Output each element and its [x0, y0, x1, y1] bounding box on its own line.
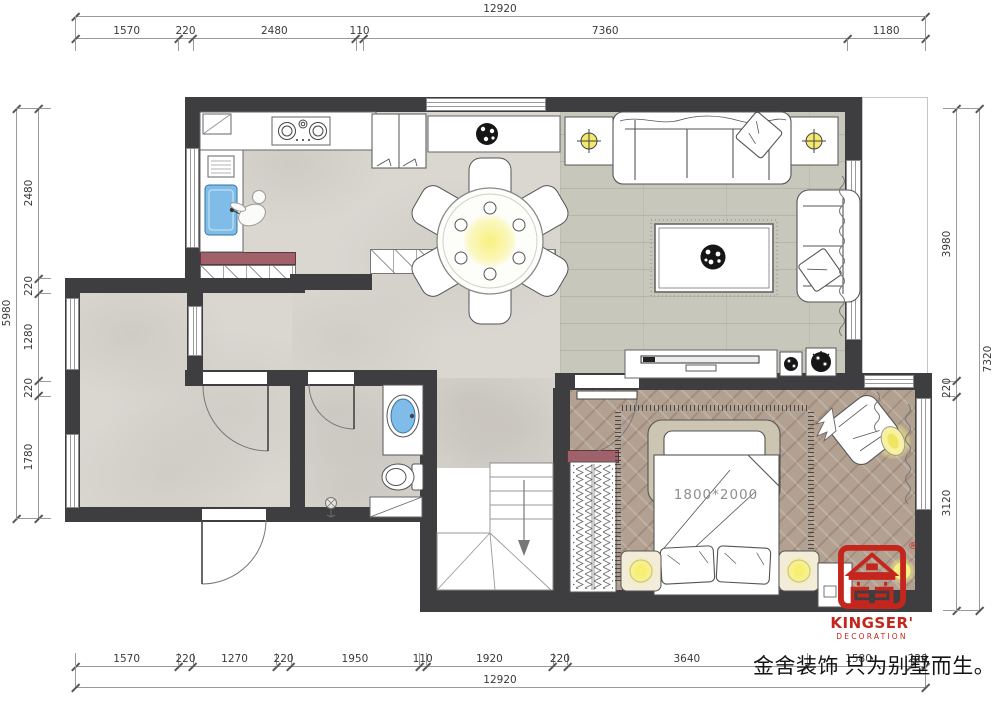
- dimension-mark: [174, 34, 183, 43]
- dimension-mark: [925, 39, 926, 51]
- dimension-label: 220: [550, 653, 570, 665]
- wall-stairs-right: [553, 388, 570, 612]
- dimension-label: 220: [23, 276, 35, 296]
- dimension-mark: [351, 34, 360, 43]
- dimension-label: 2480: [261, 25, 288, 37]
- dimension-mark: [553, 653, 554, 665]
- dimension-mark: [356, 39, 357, 51]
- window-bedroom-right: [916, 398, 931, 510]
- dimension-label: 1280: [23, 324, 35, 351]
- logo-name: KINGSER': [822, 616, 922, 631]
- dimension-label: 220: [941, 378, 953, 398]
- logo-subtitle: DECORATION: [822, 633, 922, 641]
- dimension-mark: [921, 12, 930, 21]
- dimension-label: 1570: [113, 653, 140, 665]
- kingser-logo: ® KINGSER' DECORATION: [822, 544, 922, 641]
- dimension-mark: [921, 34, 930, 43]
- dimension-mark: [419, 653, 420, 665]
- dimension-mark: [188, 662, 197, 671]
- dimension-mark: [975, 606, 984, 615]
- dimension-label: 1780: [23, 444, 35, 471]
- dimension-label: 3120: [941, 490, 953, 517]
- logo-house-icon: [837, 544, 907, 610]
- dimension-label: 220: [23, 378, 35, 398]
- dimension-label: 110: [413, 653, 433, 665]
- dimension-label: 1570: [113, 25, 140, 37]
- dimension-mark: [34, 377, 43, 386]
- dimension-mark: [12, 514, 21, 523]
- door-opening-bedroom: [575, 375, 639, 388]
- door-opening-left-room: [203, 372, 267, 384]
- dimension-mark: [39, 108, 51, 109]
- dimension-mark: [16, 108, 38, 109]
- registered-icon: ®: [908, 542, 918, 552]
- dimension-mark: [34, 289, 43, 298]
- dimension-mark: [39, 381, 51, 382]
- floor-bathroom: [303, 384, 423, 509]
- dimension-mark: [39, 278, 51, 279]
- dimension-mark: [925, 16, 926, 38]
- dimension-label: 7360: [592, 25, 619, 37]
- dimension-mark: [921, 683, 930, 692]
- dimension-mark: [952, 377, 961, 386]
- dimension-label: 1270: [221, 653, 248, 665]
- dimension-label: 220: [274, 653, 294, 665]
- wall-leftblock-bottom: [65, 507, 305, 522]
- dimension-mark: [71, 34, 80, 43]
- dimension-mark: [174, 662, 183, 671]
- dimension-mark: [75, 687, 925, 688]
- dimension-mark: [415, 662, 424, 671]
- dimension-mark: [75, 653, 76, 665]
- dimension-mark: [422, 662, 431, 671]
- side-terrace: [862, 97, 928, 380]
- dimension-mark: [943, 396, 955, 397]
- dimension-mark: [276, 653, 277, 665]
- dimension-label: 2480: [23, 180, 35, 207]
- dimension-mark: [956, 610, 979, 611]
- dimension-mark: [952, 606, 961, 615]
- dimension-mark: [75, 38, 925, 39]
- dimension-mark: [12, 104, 21, 113]
- floorplan-canvas: 1800*2000 157022024801107360118012920157…: [0, 0, 1000, 707]
- dimension-label: 3980: [941, 231, 953, 258]
- dimension-label: 3640: [673, 653, 700, 665]
- dimension-mark: [34, 104, 43, 113]
- dimension-mark: [567, 653, 568, 665]
- window-top: [426, 98, 546, 111]
- dimension-mark: [975, 104, 984, 113]
- dimension-mark: [426, 653, 427, 665]
- dimension-mark: [943, 108, 955, 109]
- dimension-mark: [563, 662, 572, 671]
- dimension-mark: [16, 518, 38, 519]
- floor-left-rooms: [78, 291, 292, 509]
- dimension-mark: [943, 381, 955, 382]
- dimension-mark: [979, 108, 980, 610]
- hall-cabinet-row: [370, 249, 556, 274]
- wall-bath-bottom: [290, 507, 437, 522]
- dimension-mark: [548, 662, 557, 671]
- dimension-mark: [38, 108, 39, 518]
- dimension-mark: [359, 34, 368, 43]
- door-opening-exterior: [202, 509, 266, 520]
- dimension-mark: [75, 666, 76, 687]
- wall-stairs-bottom: [420, 590, 570, 612]
- window-interior: [188, 306, 202, 356]
- dimension-mark: [952, 104, 961, 113]
- dimension-label: 220: [175, 653, 195, 665]
- wall-bath-right: [420, 370, 437, 612]
- dimension-mark: [952, 392, 961, 401]
- dimension-mark: [39, 518, 51, 519]
- dimension-mark: [178, 39, 179, 51]
- dimension-label: 1920: [476, 653, 503, 665]
- dimension-mark: [291, 653, 292, 665]
- dimension-mark: [193, 39, 194, 51]
- dimension-mark: [286, 662, 295, 671]
- window-left-room-2: [66, 434, 79, 508]
- dimension-mark: [843, 34, 852, 43]
- dimension-mark: [193, 653, 194, 665]
- door-opening-bathroom: [308, 372, 354, 384]
- dimension-mark: [34, 392, 43, 401]
- dimension-mark: [178, 653, 179, 665]
- dimension-label: 12920: [483, 674, 516, 686]
- dimension-label: 110: [350, 25, 370, 37]
- window-kitchen-left: [186, 148, 199, 248]
- dimension-mark: [75, 16, 76, 38]
- dimension-mark: [188, 34, 197, 43]
- window-living-right: [846, 160, 861, 340]
- dimension-mark: [272, 662, 281, 671]
- dimension-label: 12920: [483, 3, 516, 15]
- dimension-mark: [363, 39, 364, 51]
- dimension-mark: [71, 12, 80, 21]
- dimension-mark: [71, 662, 80, 671]
- brand-slogan: 金舍装饰 只为别墅而生。: [753, 650, 995, 680]
- dimension-mark: [34, 274, 43, 283]
- dimension-mark: [39, 396, 51, 397]
- dimension-label: 7320: [982, 346, 994, 373]
- dimension-mark: [71, 683, 80, 692]
- dimension-mark: [39, 293, 51, 294]
- wardrobe-accent-strip: [567, 450, 619, 463]
- counter-accent-strip: [200, 252, 296, 265]
- dimension-mark: [34, 514, 43, 523]
- dimension-mark: [16, 108, 17, 518]
- dimension-mark: [956, 108, 979, 109]
- stairs-icon: [437, 463, 553, 590]
- wall-leftblock-top: [65, 278, 305, 293]
- dimension-mark: [943, 610, 955, 611]
- floor-living-room: [560, 110, 847, 378]
- dimension-mark: [75, 39, 76, 51]
- dimension-label: 5980: [1, 300, 13, 327]
- bed-size-label: 1800*2000: [666, 487, 766, 503]
- dimension-label: 1950: [342, 653, 369, 665]
- dimension-mark: [847, 39, 848, 51]
- window-bedroom-top: [864, 375, 914, 388]
- dimension-label: 1180: [873, 25, 900, 37]
- wall-bath-left: [290, 370, 305, 522]
- dimension-mark: [956, 108, 957, 610]
- dimension-label: 220: [175, 25, 195, 37]
- dimension-mark: [75, 16, 925, 17]
- window-left-room-1: [66, 298, 79, 370]
- floor-stair-hall: [435, 378, 557, 468]
